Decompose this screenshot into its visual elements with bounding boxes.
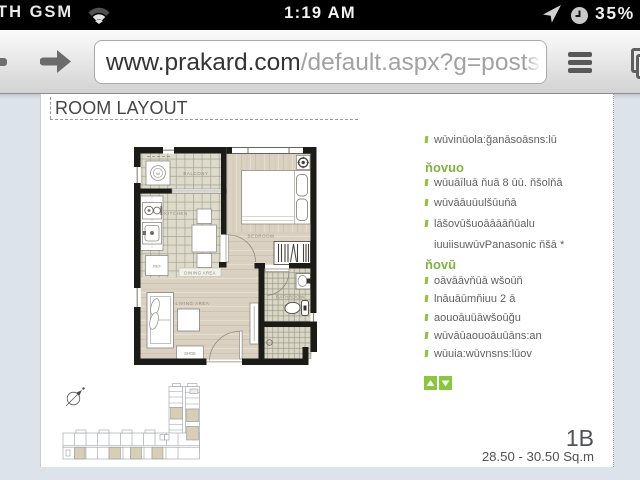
svg-text:BATHROOM: BATHROOM bbox=[276, 295, 304, 300]
svg-text:LIVING AREA: LIVING AREA bbox=[176, 301, 210, 306]
svg-text:SHOE: SHOE bbox=[184, 351, 196, 356]
svg-text:KITCHEN: KITCHEN bbox=[164, 211, 187, 216]
svg-text:W: W bbox=[156, 171, 160, 176]
svg-text:BEDROOM: BEDROOM bbox=[248, 234, 275, 239]
svg-text:BALCONY: BALCONY bbox=[183, 171, 208, 176]
svg-text:DINING AREA: DINING AREA bbox=[184, 271, 216, 276]
svg-text:REF: REF bbox=[153, 264, 162, 269]
